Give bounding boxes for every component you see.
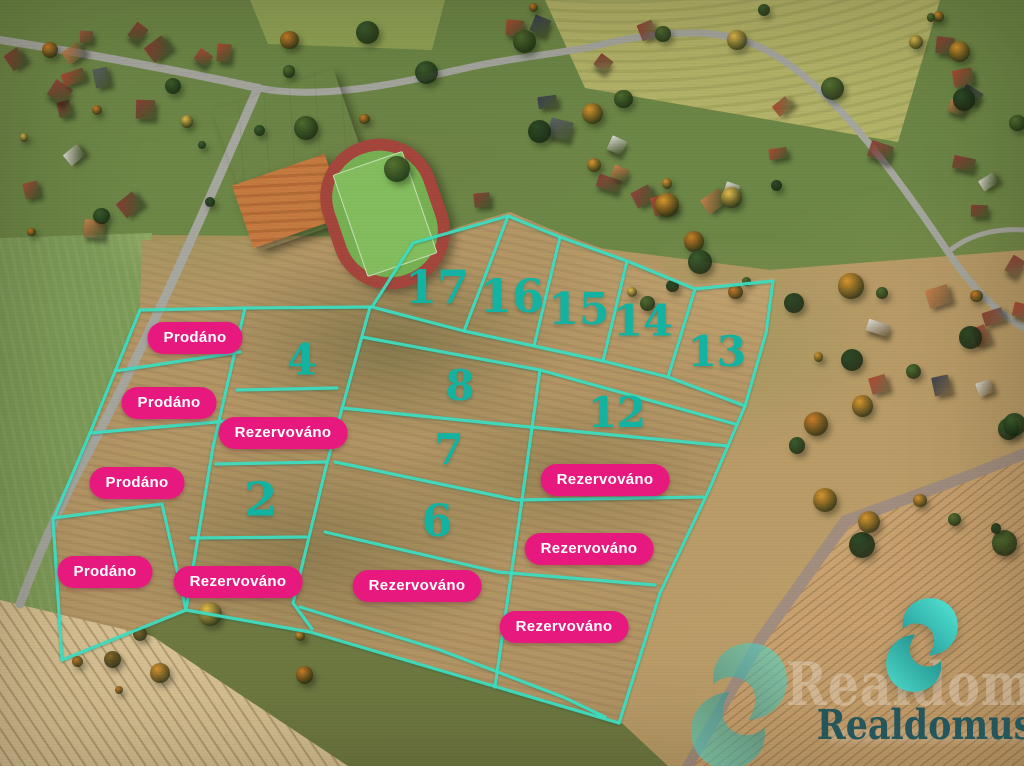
logo-swirl-faint-icon: [688, 630, 790, 766]
aerial-site-plan: 17161514134812726 ProdánoProdánoProdánoP…: [0, 0, 1024, 766]
logo-text: Realdomus: [817, 701, 1024, 749]
brand-watermark: Realdomus Realdomus: [0, 0, 1024, 766]
logo-swirl-icon: [884, 596, 960, 694]
